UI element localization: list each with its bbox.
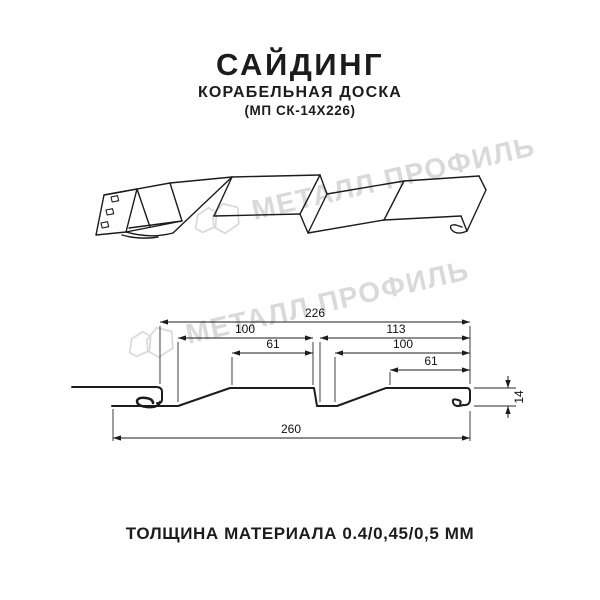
dim-small-right-label: 61	[424, 354, 437, 368]
dim-inner-left-label: 61	[266, 337, 279, 351]
dim-upper-left-label: 100	[235, 322, 255, 336]
siding-diagram-page: САЙДИНГ КОРАБЕЛЬНАЯ ДОСКА (МП СК-14Х226)…	[0, 0, 600, 600]
flange-hole-icon	[106, 209, 114, 215]
dim-height-label: 14	[512, 390, 526, 403]
dim-overall-top-label: 226	[305, 306, 325, 320]
technical-drawing-canvas	[0, 0, 600, 600]
dim-overall-bottom-label: 260	[281, 422, 301, 436]
dim-inner-right-label: 100	[393, 337, 413, 351]
siding-3d-view	[96, 175, 486, 238]
dim-upper-right-label: 113	[386, 322, 405, 336]
flange-hole-icon	[111, 196, 119, 202]
flange-hole-icon	[101, 222, 109, 228]
